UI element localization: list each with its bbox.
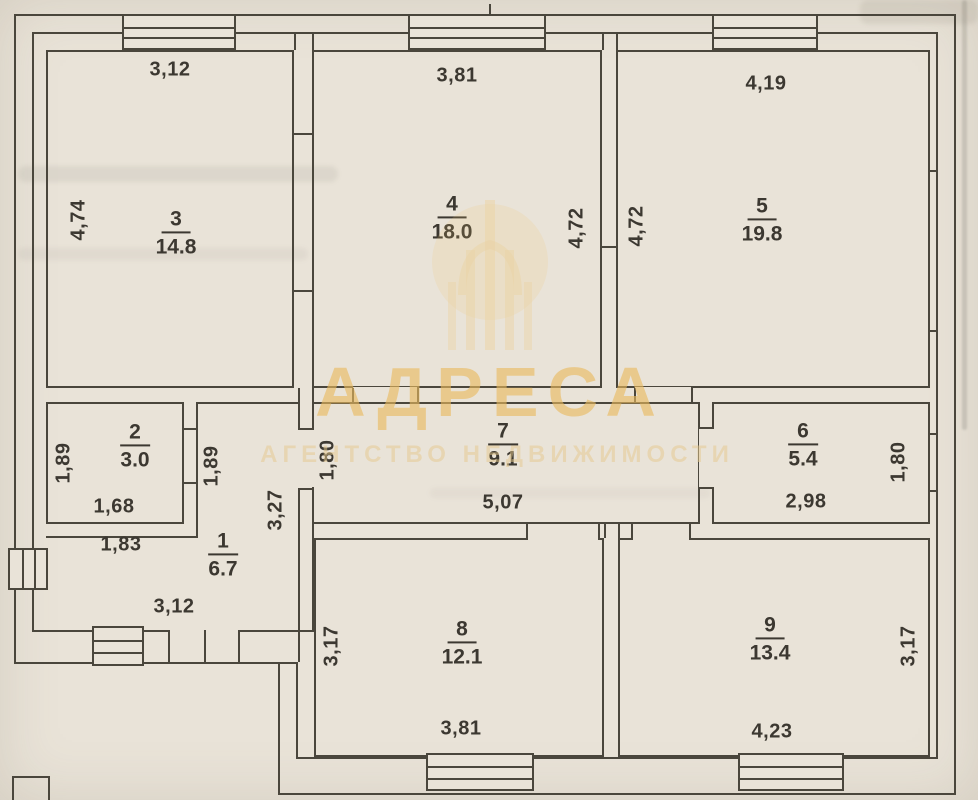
wall-connector — [604, 524, 606, 538]
dimension-label: 3,27 — [265, 490, 288, 531]
dimension-label: 3,17 — [321, 626, 344, 667]
window-hatch-line — [94, 640, 142, 642]
door-jamb — [168, 630, 170, 664]
dimension-label: 3,81 — [441, 718, 482, 741]
door-jamb — [691, 388, 693, 404]
lower-left-wall-inner — [296, 662, 298, 759]
room-label-3: 3 14.8 — [156, 207, 197, 258]
door-opening — [353, 387, 417, 391]
lower-left-wall-outer — [278, 662, 280, 795]
outer-wall-right — [954, 14, 956, 795]
dimension-label: 1,89 — [201, 446, 224, 487]
room-label-8: 8 12.1 — [442, 617, 483, 668]
floor-plan-scan: 3,12 4,74 3,81 4,72 4,72 4,19 1,89 1,89 … — [0, 0, 978, 800]
dimension-label: 3,17 — [898, 626, 921, 667]
dimension-label: 3,81 — [437, 65, 478, 88]
room-label-9: 9 13.4 — [750, 613, 791, 664]
window-hatch-line — [428, 766, 532, 768]
window-hatch-line — [428, 778, 532, 780]
window-hatch-line — [94, 652, 142, 654]
door-opening — [632, 537, 689, 541]
room-area: 5.4 — [788, 448, 818, 471]
dimension-label: 4,74 — [68, 200, 91, 241]
room-number: 1 — [208, 529, 238, 555]
wall-tick — [930, 433, 938, 435]
dimension-label: 4,72 — [566, 208, 589, 249]
door-opening — [635, 387, 691, 391]
window-hatch-line — [22, 550, 24, 588]
door-opening — [311, 429, 315, 487]
room-number: 6 — [788, 419, 818, 445]
room-area: 13.4 — [750, 642, 791, 665]
window-hatch — [426, 753, 534, 791]
window-hatch — [92, 626, 144, 666]
wall-connector — [616, 32, 618, 50]
scan-artifact — [860, 0, 978, 24]
room-label-1: 1 6.7 — [208, 529, 238, 580]
door-jamb — [184, 428, 198, 430]
room-number: 8 — [447, 617, 477, 643]
door-jamb — [631, 524, 633, 540]
room-area: 18.0 — [432, 221, 473, 244]
dimension-label: 2,98 — [786, 491, 827, 514]
room-number: 9 — [755, 613, 785, 639]
door-jamb — [184, 482, 198, 484]
window-hatch-line — [410, 27, 544, 29]
window-hatch-line — [34, 550, 36, 588]
window-hatch — [738, 753, 844, 791]
room-number: 7 — [488, 419, 518, 445]
door-opening — [711, 429, 715, 487]
room-label-4: 4 18.0 — [432, 192, 473, 243]
dimension-label: 4,19 — [746, 73, 787, 96]
inner-wall-right — [936, 32, 938, 759]
door-jamb — [700, 427, 714, 429]
window-hatch-line — [410, 37, 544, 39]
room1-bottom-wall — [238, 630, 316, 632]
wall-tick — [294, 290, 314, 292]
step-wall-outer — [14, 662, 298, 664]
room2-outer-right-wall — [196, 402, 198, 536]
door-jamb — [352, 388, 354, 404]
wall-connector — [312, 32, 314, 50]
dimension-label: 1,80 — [888, 442, 911, 483]
window-hatch — [122, 14, 236, 50]
window-hatch-line — [714, 37, 816, 39]
door-jamb — [204, 630, 206, 664]
door-jamb — [598, 524, 600, 540]
room-label-7: 7 9.1 — [488, 419, 518, 470]
door-jamb — [298, 428, 314, 430]
room-area: 9.1 — [488, 448, 518, 471]
wall-tick — [930, 170, 938, 172]
wall-tick — [294, 133, 314, 135]
porch-outline — [12, 776, 14, 800]
door-jamb — [689, 524, 691, 540]
room-number: 3 — [161, 207, 191, 233]
door-jamb — [298, 488, 314, 490]
window-hatch-line — [124, 27, 234, 29]
door-jamb — [634, 388, 636, 404]
window-hatch — [8, 548, 48, 590]
hall-wall — [298, 488, 300, 662]
room-area: 6.7 — [208, 558, 238, 581]
room-label-6: 6 5.4 — [788, 419, 818, 470]
window-hatch-line — [740, 778, 842, 780]
dimension-label: 3,12 — [154, 596, 195, 619]
wall-connector — [294, 32, 296, 50]
porch-outline — [48, 776, 50, 800]
room-area: 3.0 — [120, 449, 150, 472]
window-hatch-line — [124, 37, 234, 39]
room-label-2: 2 3.0 — [120, 420, 150, 471]
window-hatch-line — [740, 766, 842, 768]
wall-tick — [930, 490, 938, 492]
room-number: 2 — [120, 420, 150, 446]
porch-outline — [12, 776, 50, 778]
dimension-label: 5,07 — [483, 492, 524, 515]
dimension-label: 4,23 — [752, 721, 793, 744]
wall-tick — [602, 246, 618, 248]
door-jamb — [238, 630, 240, 664]
outer-wall-bottom — [278, 793, 956, 795]
hall-wall — [298, 388, 300, 428]
wall-connector — [618, 524, 620, 538]
wall-tick — [930, 330, 938, 332]
scan-artifact — [962, 0, 967, 430]
outer-wall-left-inner — [32, 32, 34, 632]
dimension-label: 1,80 — [317, 440, 340, 481]
wall-connector — [602, 32, 604, 50]
dimension-label: 3,12 — [150, 59, 191, 82]
dimension-label: 1,68 — [94, 496, 135, 519]
room-number: 4 — [437, 192, 467, 218]
hall-wall — [312, 524, 314, 630]
door-jamb — [417, 388, 419, 404]
room-area: 14.8 — [156, 236, 197, 259]
window-hatch — [408, 14, 546, 50]
window-hatch — [712, 14, 818, 50]
dimension-label: 1,89 — [53, 443, 76, 484]
window-hatch-line — [714, 27, 816, 29]
room-area: 19.8 — [742, 223, 783, 246]
room-label-5: 5 19.8 — [742, 194, 783, 245]
room1-top-wall — [196, 402, 298, 404]
door-jamb — [700, 487, 714, 489]
room-number: 5 — [747, 194, 777, 220]
dimension-label: 4,72 — [626, 206, 649, 247]
room-area: 12.1 — [442, 646, 483, 669]
door-opening — [699, 429, 703, 487]
hall-wall — [312, 388, 314, 402]
door-opening — [527, 537, 598, 541]
door-jamb — [526, 524, 528, 540]
dimension-label: 1,83 — [101, 534, 142, 557]
